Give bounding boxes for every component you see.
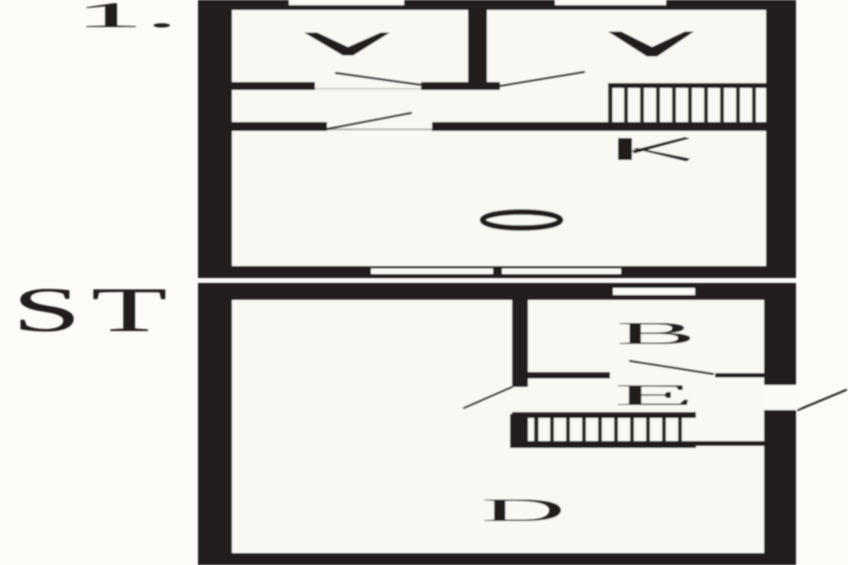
svg-text:D: D [481, 491, 566, 528]
svg-text:1.: 1. [74, 0, 179, 35]
svg-text:E: E [614, 378, 695, 411]
svg-text:B: B [616, 316, 696, 351]
svg-text:ST: ST [12, 275, 177, 345]
